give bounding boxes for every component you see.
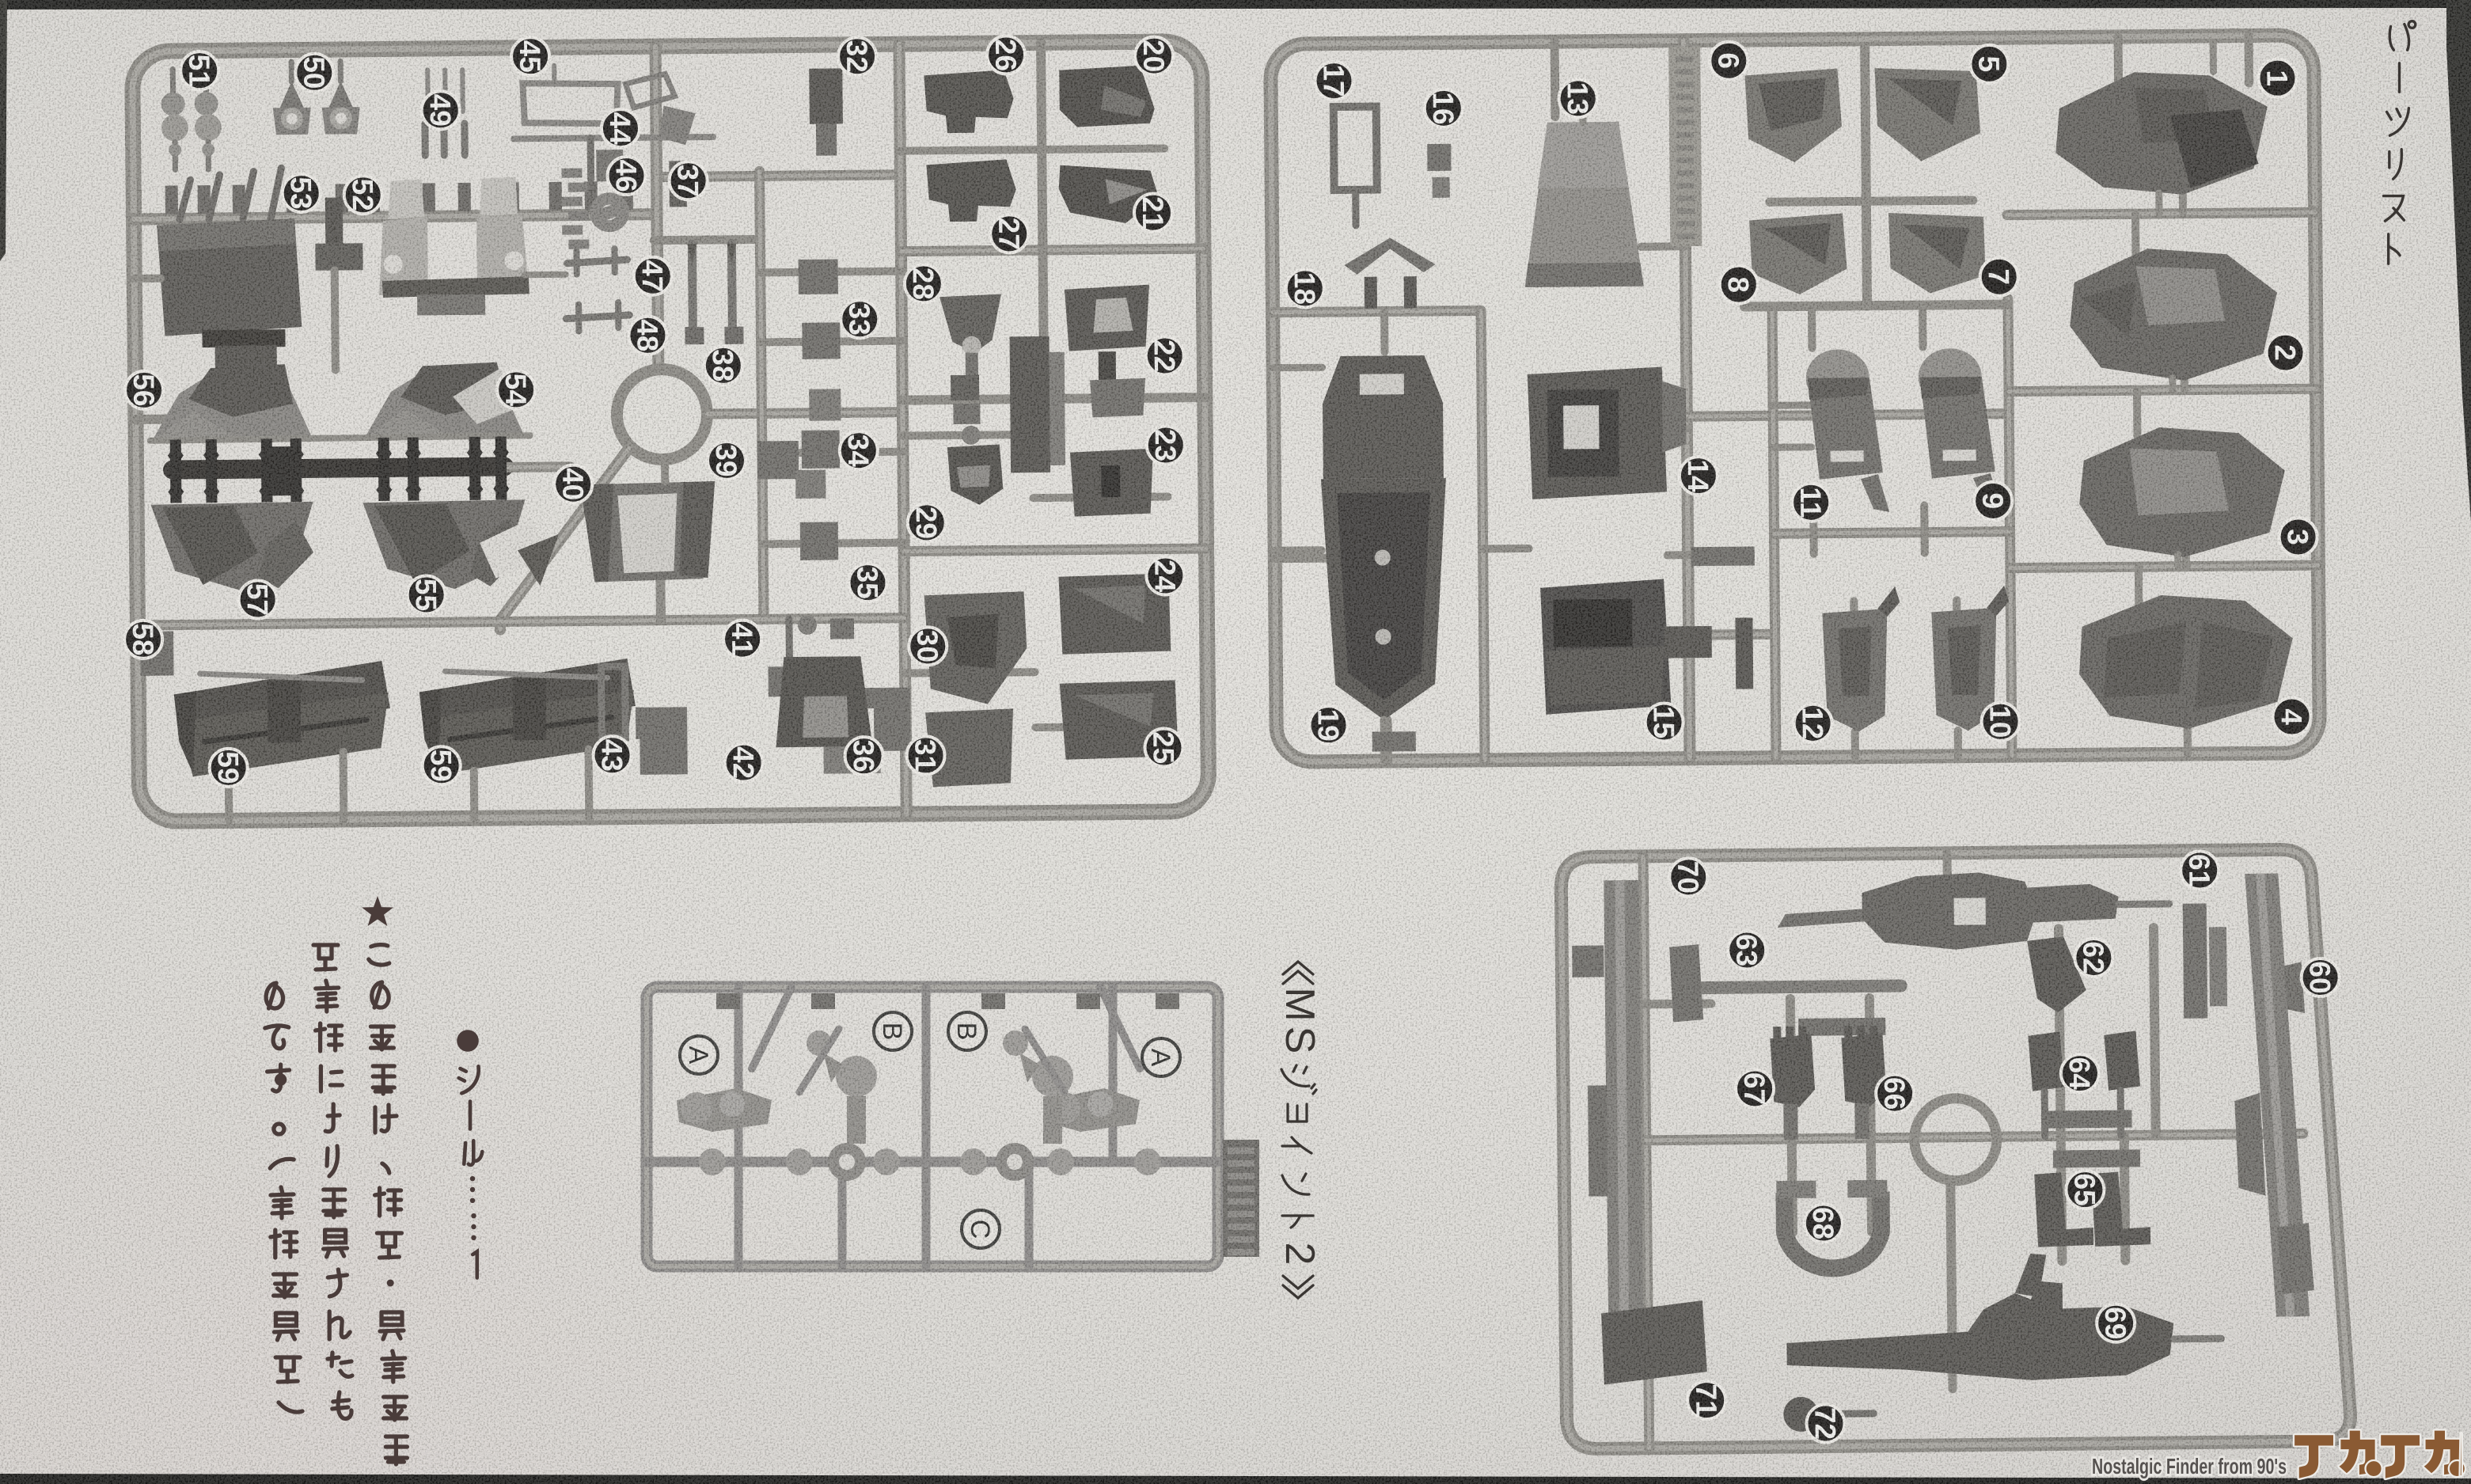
- svg-text:S: S: [1277, 1027, 1323, 1054]
- svg-text:2: 2: [1277, 1243, 1323, 1266]
- svg-text:Nostalgic Finder from 90's: Nostalgic Finder from 90's: [2092, 1454, 2287, 1478]
- svg-text:M: M: [1277, 987, 1323, 1021]
